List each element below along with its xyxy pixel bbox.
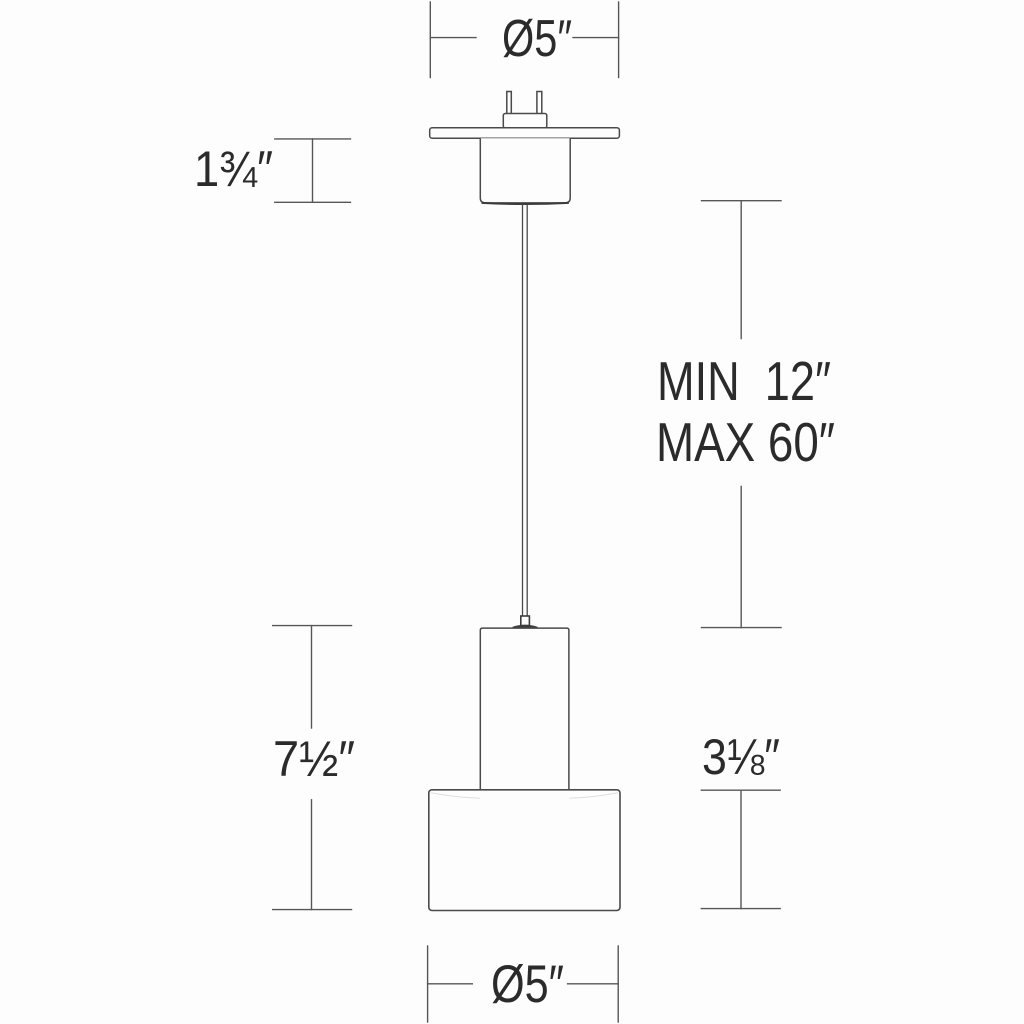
svg-text:MAX 60″: MAX 60″ bbox=[656, 411, 835, 473]
svg-text:7½″: 7½″ bbox=[273, 731, 355, 787]
svg-text:Ø5″: Ø5″ bbox=[491, 955, 564, 1014]
svg-text:MIN 12″: MIN 12″ bbox=[657, 350, 831, 412]
svg-text:Ø5″: Ø5″ bbox=[502, 10, 572, 68]
svg-text:3⅛″: 3⅛″ bbox=[702, 729, 780, 785]
svg-text:1¾″: 1¾″ bbox=[194, 141, 273, 197]
